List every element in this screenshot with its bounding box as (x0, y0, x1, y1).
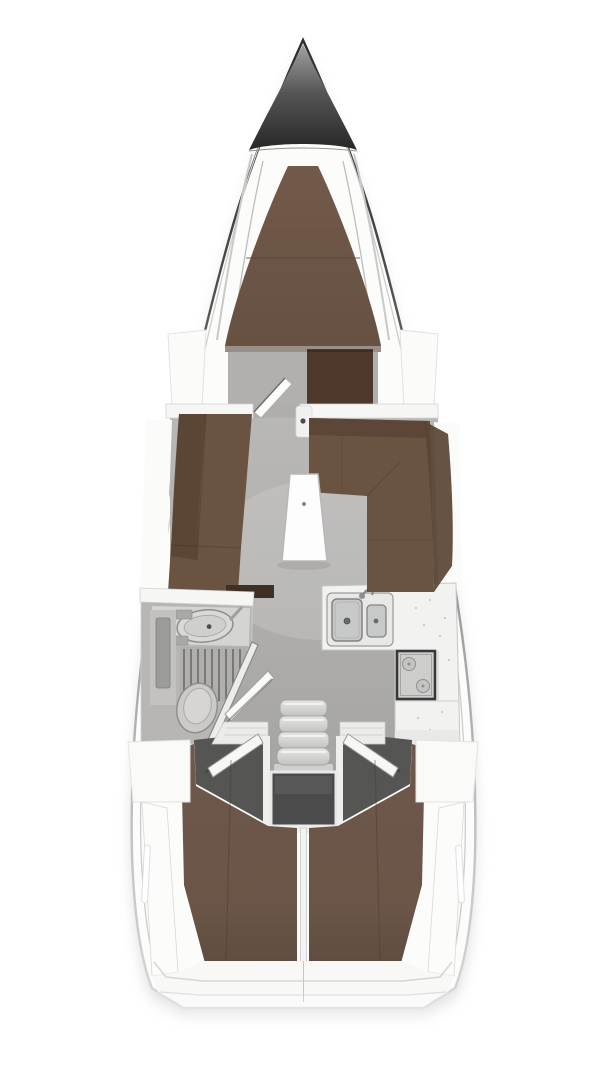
engine-compartment-top (275, 776, 332, 794)
anchor-locker-shape (249, 44, 357, 150)
soap-tray-1 (176, 610, 192, 619)
step-1 (280, 700, 327, 716)
stove-burner-2-center (422, 685, 425, 688)
port-settee (168, 414, 252, 592)
port-corner-cabinet (128, 740, 190, 802)
stern-fade (90, 985, 520, 1080)
berth-center-divider (301, 828, 307, 978)
bow-anchor-locker (249, 44, 357, 151)
step-4 (277, 748, 330, 765)
door-latch-dot (300, 418, 305, 423)
companionway-steps (277, 700, 330, 765)
sink-drain-large (344, 618, 350, 624)
yacht-floor-plan (0, 0, 608, 1080)
sink-drain-small (374, 619, 379, 624)
table-center-dot (302, 502, 306, 506)
port-side-locker-panel (168, 330, 206, 408)
step-3 (278, 732, 329, 748)
companionway-rail-port (263, 736, 270, 831)
starboard-settee-top-strip (309, 418, 428, 438)
side-cabinet-slot (156, 618, 170, 688)
bulkhead-starboard (300, 404, 438, 418)
starboard-corner-cabinet (416, 740, 478, 802)
stove (397, 651, 435, 699)
starboard-side-locker-panel (400, 330, 438, 408)
wardrobe (307, 349, 373, 408)
floor-plan-canvas (0, 0, 608, 1080)
stove-burner-1-center (408, 663, 411, 666)
step-2 (279, 716, 328, 732)
